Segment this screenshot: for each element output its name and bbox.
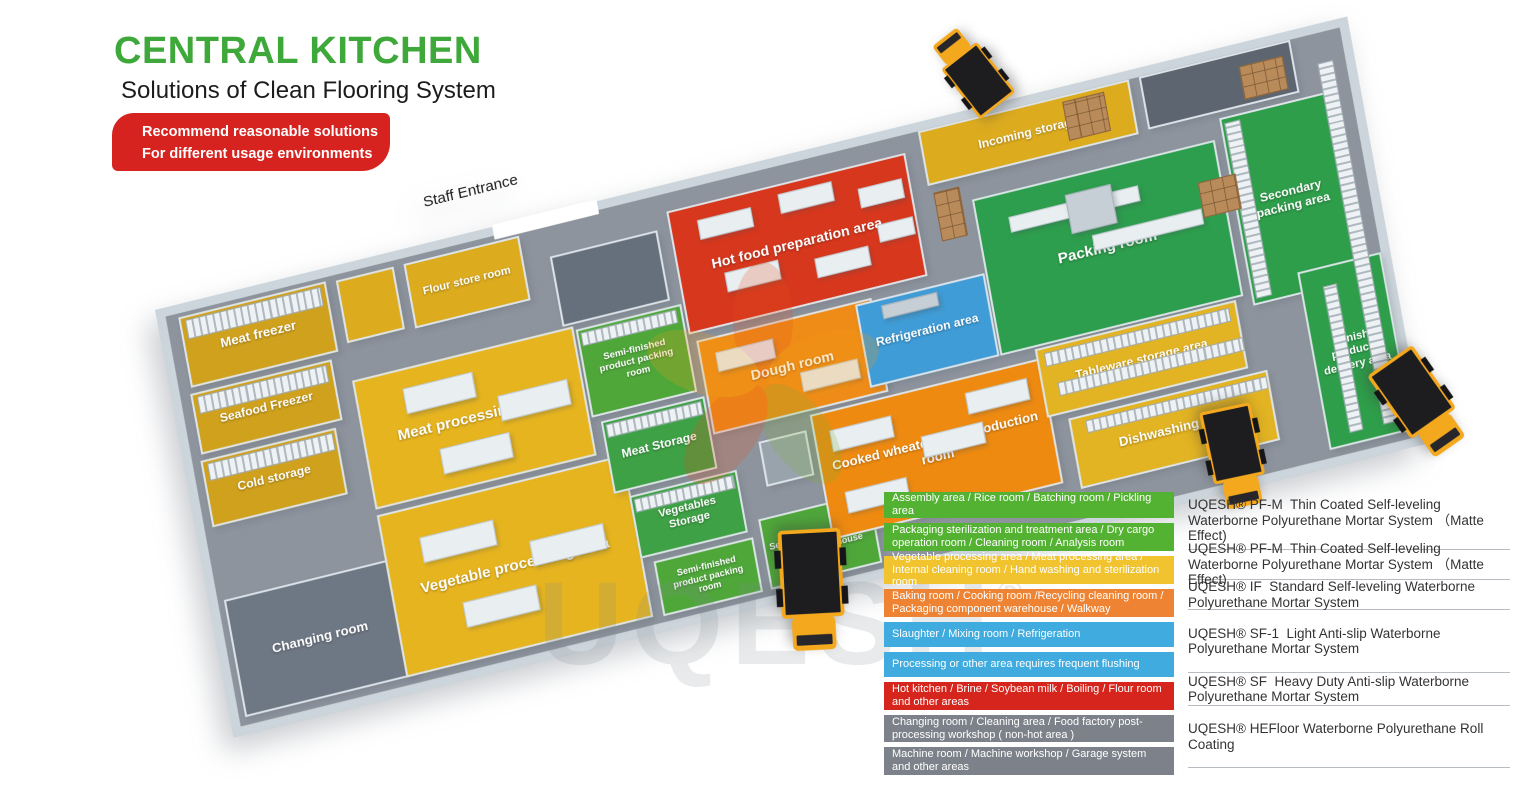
legend-area-list: Assembly area / Rice room / Batching roo… [884,492,1174,775]
central-kitchen-infographic: CENTRAL KITCHEN Solutions of Clean Floor… [0,0,1536,800]
legend-row: Machine room / Machine workshop / Garage… [884,747,1174,775]
product-row: UQESH® PF-M Thin Coated Self-leveling Wa… [1188,550,1510,580]
legend-row: Slaughter / Mixing room / Refrigeration [884,622,1174,647]
legend-row: Processing or other area requires freque… [884,652,1174,677]
room-flour-store-room: Flour store room [403,236,530,329]
recommendation-banner: Recommend reasonable solutions For diffe… [112,113,390,171]
product-row: UQESH® SF Heavy Duty Anti-slip Waterborn… [1188,673,1510,706]
page-subtitle: Solutions of Clean Flooring System [121,77,496,105]
room-changing-room: Changing room [224,558,417,717]
room-label: Semi-finished product packing room [657,547,759,607]
room-partition-room [758,430,814,487]
room-refrigeration-area: Refrigeration area [855,273,1000,388]
room-label: Flour store room [420,262,515,302]
page-title: CENTRAL KITCHEN [114,30,482,73]
legend-row: Assembly area / Rice room / Batching roo… [884,492,1174,518]
legend-product-list: UQESH® PF-M Thin Coated Self-leveling Wa… [1188,492,1510,775]
room-storage-small [336,267,405,344]
carton-boxes [933,186,968,241]
room-label: Changing room [269,616,372,660]
product-row: UQESH® SF-1 Light Anti-slip Waterborne P… [1188,610,1510,673]
legend-row: Packaging sterilization and treatment ar… [884,523,1174,551]
banner-line-1: Recommend reasonable solutions [142,122,390,144]
legend-row: Changing room / Cleaning area / Food fac… [884,715,1174,742]
legend-row: Vegetable processing area / Meat process… [884,556,1174,584]
flooring-legend: Assembly area / Rice room / Batching roo… [884,492,1510,775]
product-row: UQESH® HEFloor Waterborne Polyurethane R… [1188,706,1510,768]
legend-row: Hot kitchen / Brine / Soybean milk / Boi… [884,682,1174,710]
truck-icon [770,524,855,656]
legend-row: Baking room / Cooking room /Recycling cl… [884,589,1174,617]
product-row: UQESH® IF Standard Self-leveling Waterbo… [1188,580,1510,610]
banner-line-2: For different usage environments [142,144,390,166]
staff-entrance-label: Staff Entrance [422,171,519,211]
staff-entrance-gap [492,199,599,239]
